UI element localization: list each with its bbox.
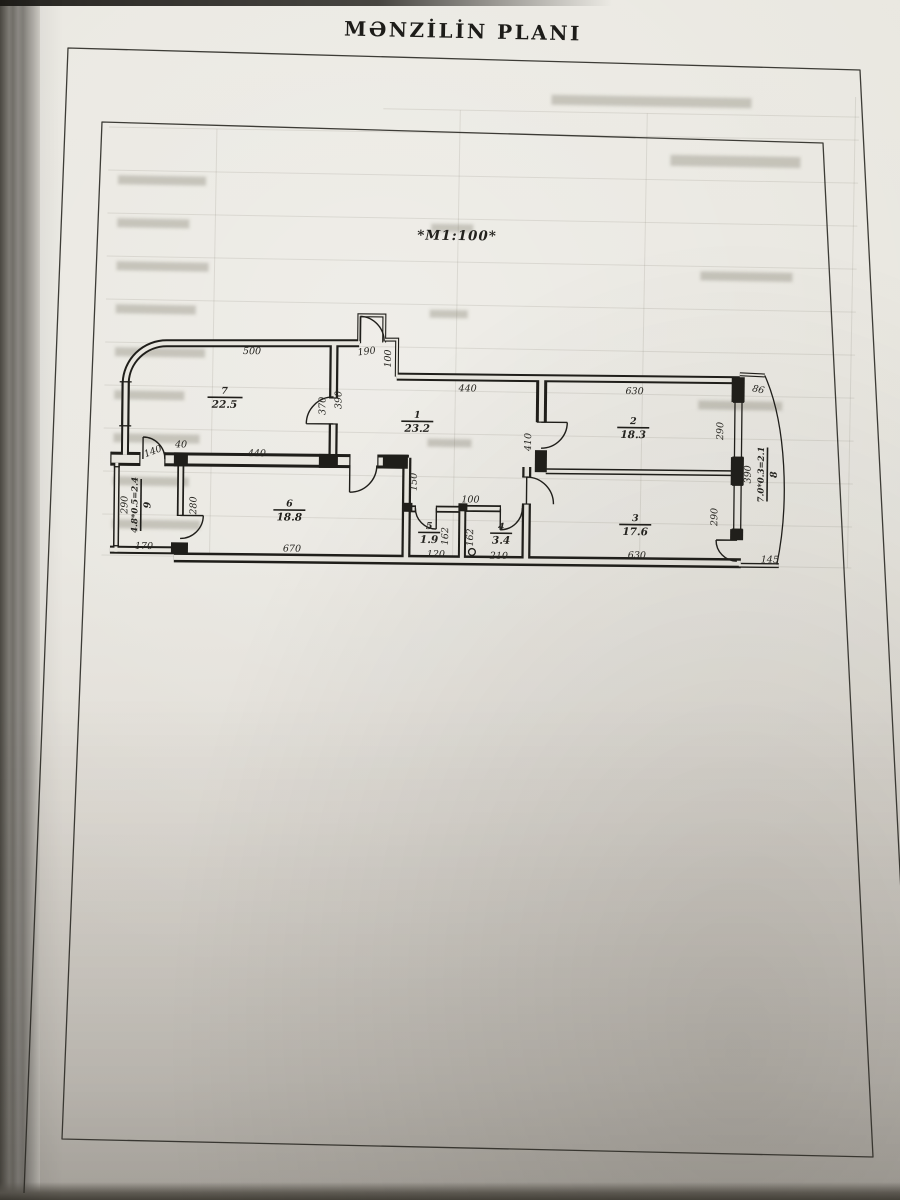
dim-wc-top: 100 bbox=[461, 494, 479, 505]
room-label-4: 4 3.4 bbox=[490, 522, 512, 547]
room-label-3: 3 17.6 bbox=[619, 513, 651, 538]
svg-text:17.6: 17.6 bbox=[622, 526, 648, 538]
dim-room9-right: 280 bbox=[188, 496, 199, 515]
dim-room4-height: 162 bbox=[465, 528, 476, 546]
dim-pier: 40 bbox=[174, 439, 187, 450]
dim-room9-bottom: 170 bbox=[135, 541, 153, 552]
dim-room4-bottom: 210 bbox=[489, 551, 508, 562]
svg-text:9: 9 bbox=[142, 501, 153, 508]
svg-text:4.8*0.5=2.4: 4.8*0.5=2.4 bbox=[130, 477, 141, 533]
bleed-through-table bbox=[101, 84, 859, 568]
dim-room5-height: 162 bbox=[440, 527, 451, 545]
dim-balcony-top: 86 bbox=[751, 383, 765, 396]
dim-balcony-side: 390 bbox=[743, 465, 754, 483]
photographed-floor-plan-page: MƏNZİLİN PLANI *M1:100* bbox=[0, 0, 900, 1200]
svg-text:8: 8 bbox=[769, 471, 780, 478]
room-label-8: 7.0*0.3=2.1 8 bbox=[756, 446, 780, 502]
svg-text:22.5: 22.5 bbox=[211, 399, 238, 411]
dim-room7-top: 500 bbox=[243, 346, 261, 357]
dim-room6-top: 440 bbox=[247, 448, 266, 459]
svg-text:4: 4 bbox=[498, 522, 505, 533]
page-title: MƏNZİLİN PLANI bbox=[344, 17, 582, 46]
svg-text:3.4: 3.4 bbox=[492, 535, 510, 547]
svg-text:5: 5 bbox=[426, 521, 433, 532]
dim-balcony-bottom: 145 bbox=[761, 554, 779, 565]
plumbing-riser-symbol bbox=[468, 549, 475, 556]
room-label-1: 1 23.2 bbox=[401, 410, 433, 435]
dim-entry-niche: 190 bbox=[357, 345, 376, 358]
dim-room3-window: 290 bbox=[709, 508, 720, 527]
dim-room9-left: 290 bbox=[119, 496, 130, 515]
svg-text:18.8: 18.8 bbox=[276, 511, 302, 523]
room-label-6: 6 18.8 bbox=[273, 498, 305, 523]
svg-text:7.0*0.3=2.1: 7.0*0.3=2.1 bbox=[756, 446, 767, 502]
dim-room2-window: 290 bbox=[715, 422, 726, 441]
svg-text:1: 1 bbox=[414, 410, 421, 421]
dim-room6-bottom: 670 bbox=[283, 543, 301, 554]
dim-room7-wall-b: 390 bbox=[333, 391, 344, 409]
svg-text:23.2: 23.2 bbox=[403, 423, 430, 435]
dim-room5-bottom: 120 bbox=[427, 549, 445, 560]
scale-note: *M1:100* bbox=[417, 228, 497, 245]
dim-corridor: 150 bbox=[409, 473, 420, 491]
svg-text:7: 7 bbox=[221, 386, 228, 397]
svg-text:18.3: 18.3 bbox=[620, 429, 646, 441]
dim-niche-depth: 100 bbox=[383, 349, 394, 367]
room-label-2: 2 18.3 bbox=[617, 416, 649, 441]
document-svg: MƏNZİLİN PLANI *M1:100* bbox=[0, 0, 900, 1200]
svg-text:1.9: 1.9 bbox=[420, 534, 439, 546]
dim-room7-wall-a: 370 bbox=[317, 397, 328, 415]
dim-room7-door: 140 bbox=[143, 443, 164, 460]
dim-room2-top: 630 bbox=[625, 386, 643, 397]
svg-text:3: 3 bbox=[632, 513, 639, 524]
svg-text:2: 2 bbox=[629, 416, 637, 427]
dim-room3-bottom: 630 bbox=[628, 550, 646, 561]
dim-hall-top: 440 bbox=[458, 383, 477, 394]
svg-text:6: 6 bbox=[286, 498, 293, 509]
dim-room2-door-wall: 410 bbox=[523, 433, 534, 452]
